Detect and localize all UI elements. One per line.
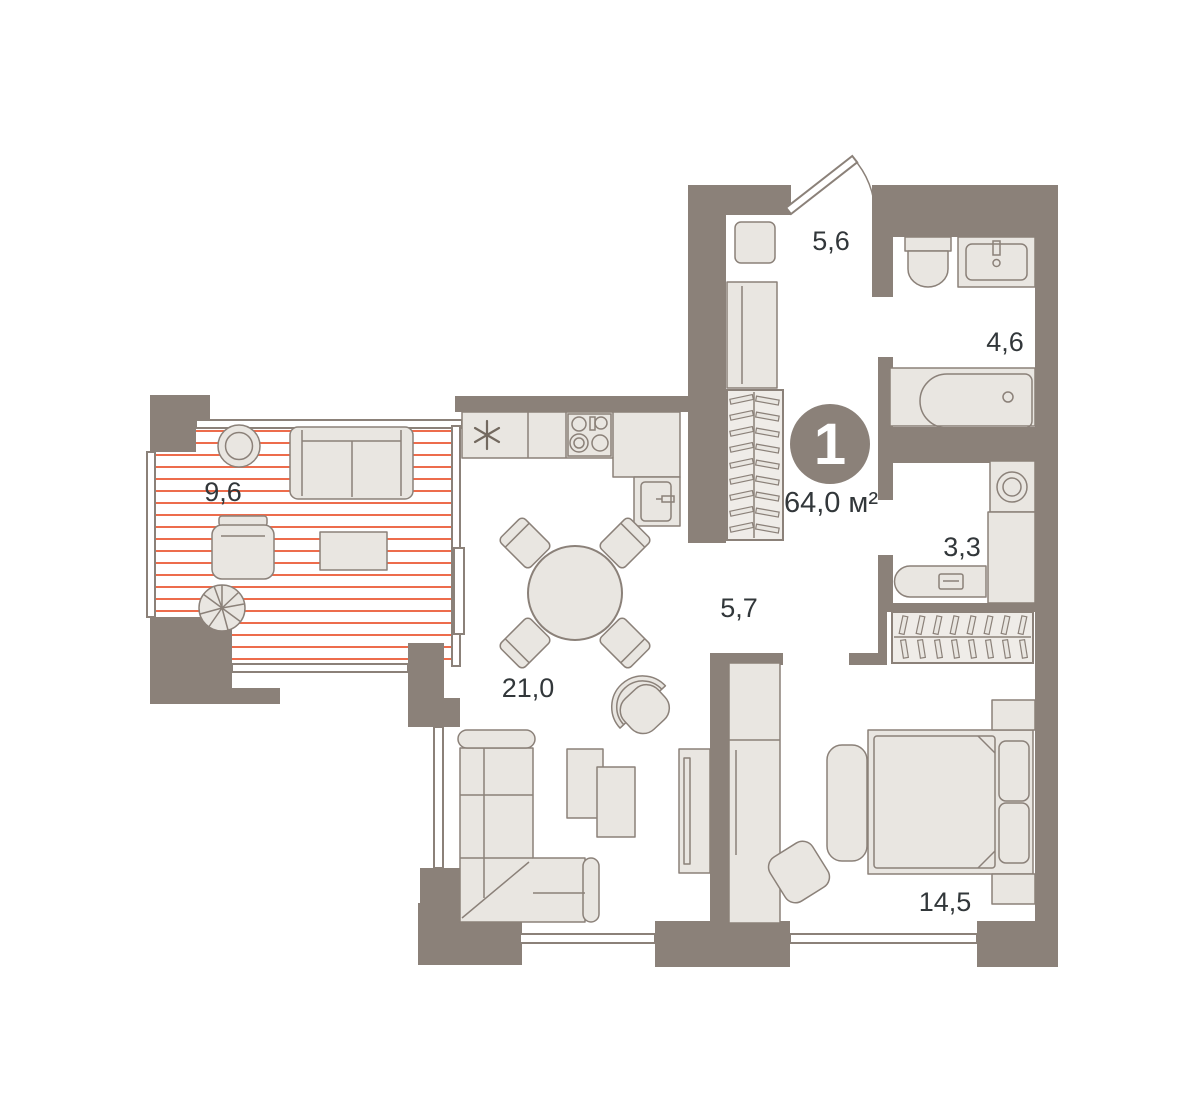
living-furniture bbox=[458, 516, 710, 922]
balcony-armchair bbox=[212, 516, 274, 579]
bathtub bbox=[890, 368, 1035, 428]
bed-bench bbox=[827, 745, 867, 861]
kitchen-counter bbox=[462, 412, 680, 477]
pillow bbox=[999, 803, 1029, 863]
tv-stand bbox=[679, 749, 710, 873]
bedroom-furniture bbox=[729, 663, 1035, 923]
shoe-cabinet bbox=[735, 222, 775, 263]
balcony-left-rail bbox=[147, 452, 155, 617]
bedroom-south-window bbox=[790, 934, 977, 943]
lounge-chair bbox=[599, 663, 682, 746]
hallway-furniture bbox=[727, 222, 783, 540]
tv-icon bbox=[684, 758, 690, 864]
round-side-table bbox=[218, 425, 260, 467]
living-west-window bbox=[434, 727, 443, 868]
rooms-count: 1 bbox=[814, 412, 846, 477]
bed bbox=[868, 730, 1033, 874]
plant bbox=[199, 585, 245, 631]
balcony-table bbox=[320, 532, 387, 570]
bedroom-cabinet-desk bbox=[729, 663, 780, 923]
dining-table bbox=[528, 546, 622, 640]
washing-machine bbox=[990, 461, 1035, 512]
nightstand bbox=[992, 700, 1035, 730]
balcony-bottom-rail bbox=[232, 664, 408, 672]
hall-wardrobe bbox=[727, 390, 783, 540]
nightstand bbox=[992, 874, 1035, 904]
area-badge: 1 64,0 м² bbox=[784, 404, 878, 519]
kitchen-sink bbox=[634, 477, 680, 526]
room-label-kitchen-living: 21,0 bbox=[502, 673, 555, 703]
room-label-hallway: 5,6 bbox=[812, 226, 850, 256]
ironing-board bbox=[894, 566, 986, 597]
room-label-corridor: 5,7 bbox=[720, 593, 758, 623]
entrance-door bbox=[786, 156, 875, 214]
floor-plan-page: 5,6 4,6 3,3 5,7 21,0 9,6 14,5 1 64,0 м² bbox=[0, 0, 1200, 1118]
balcony-door-leaf bbox=[454, 548, 464, 634]
kitchen bbox=[462, 412, 680, 526]
room-label-balcony: 9,6 bbox=[204, 477, 242, 507]
door-leaf bbox=[786, 156, 857, 214]
room-label-bathroom: 4,6 bbox=[986, 327, 1024, 357]
coffee-table bbox=[597, 767, 635, 837]
bathroom-sink bbox=[958, 237, 1035, 287]
mattress bbox=[874, 736, 995, 868]
room-label-laundry: 3,3 bbox=[943, 532, 981, 562]
hall-cabinet bbox=[727, 282, 777, 388]
laundry-counter bbox=[988, 512, 1035, 603]
total-area-label: 64,0 м² bbox=[784, 487, 878, 519]
living-south-window bbox=[520, 934, 655, 943]
floor-plan: 5,6 4,6 3,3 5,7 21,0 9,6 14,5 1 64,0 м² bbox=[0, 0, 1200, 1118]
pillow bbox=[999, 741, 1029, 801]
bedroom-wardrobe bbox=[892, 612, 1033, 663]
balcony-sofa bbox=[290, 427, 413, 499]
door-swing-arc bbox=[853, 158, 875, 214]
room-label-bedroom: 14,5 bbox=[919, 887, 972, 917]
toilet bbox=[905, 237, 951, 287]
